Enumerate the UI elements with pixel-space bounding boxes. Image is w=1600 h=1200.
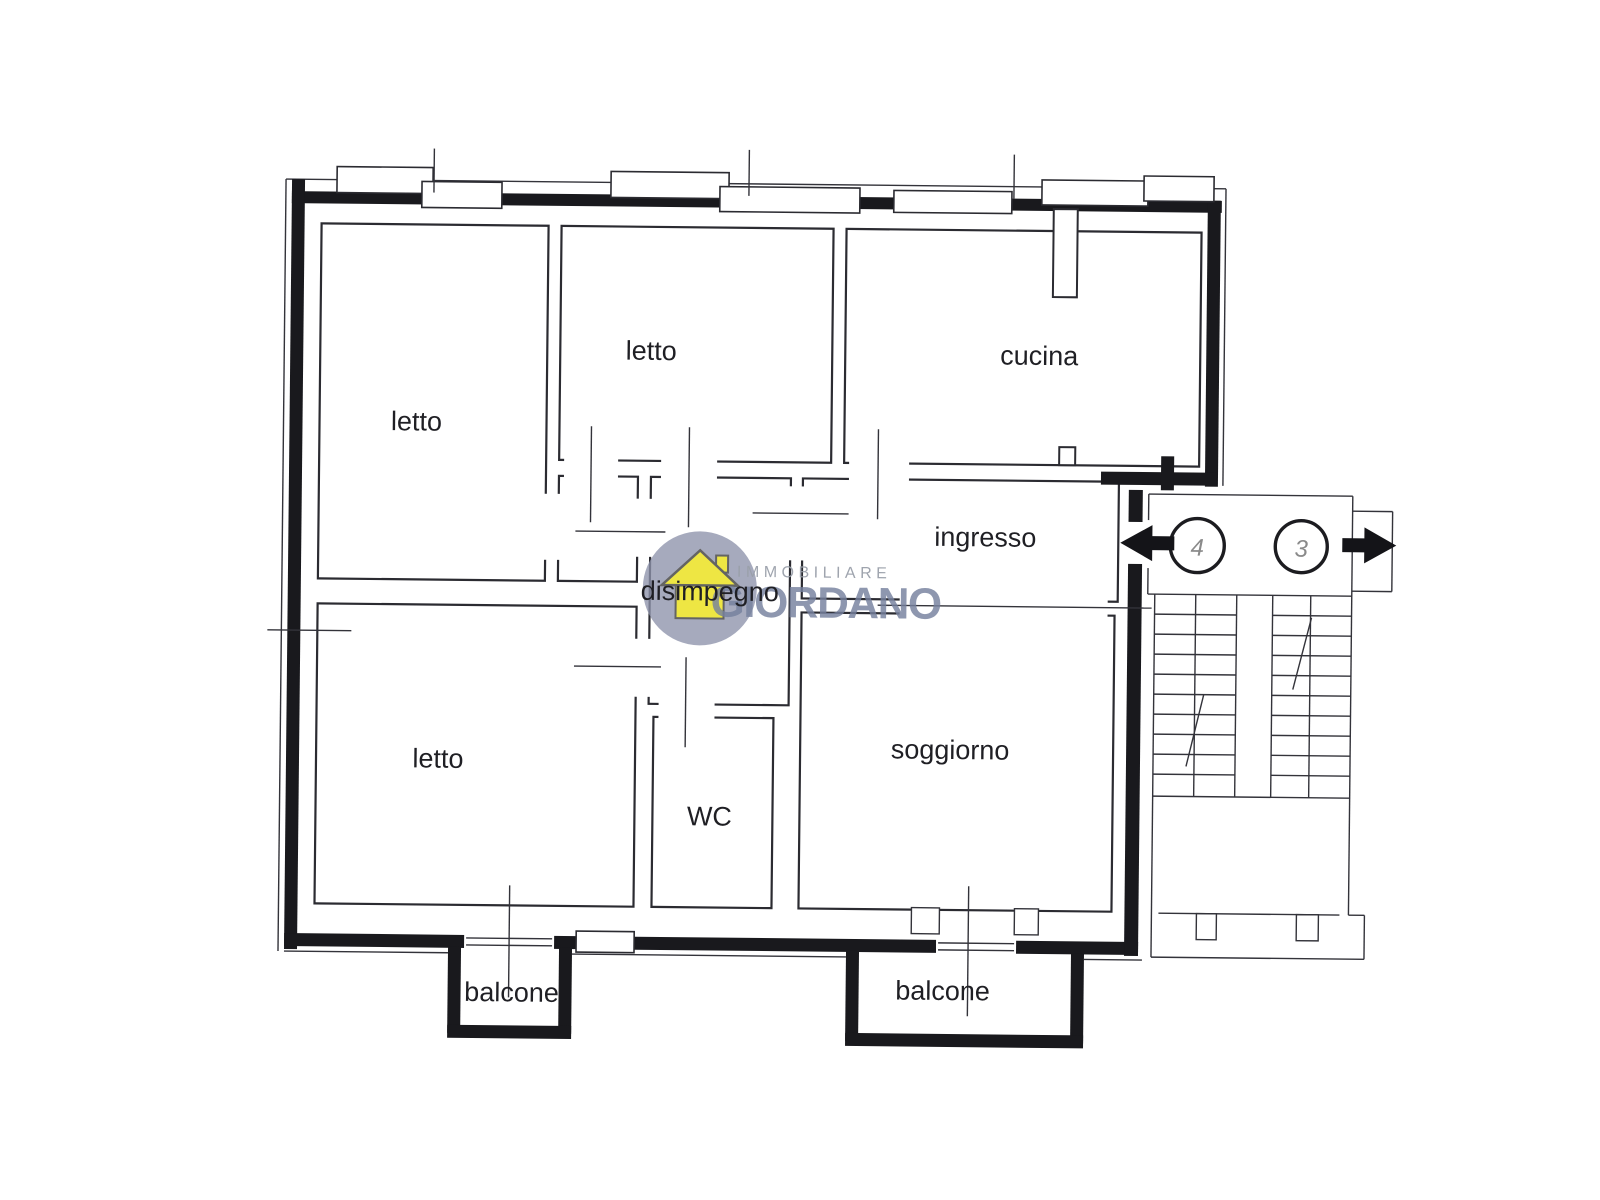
room-label-letto-top-middle: letto [626,336,677,367]
entry-arrow-right-icon [1342,527,1396,564]
room-alcove [558,476,638,582]
room-label-ingresso: ingresso [934,522,1036,553]
room-label-letto-top-left: letto [391,406,442,437]
room-letto-top-middle [559,226,833,463]
staircase: 4 3 [1144,494,1393,960]
apartment-number-label: 3 [1294,536,1308,563]
room-label-soggiorno: soggiorno [891,734,1010,765]
room-label-wc: WC [687,801,732,831]
room-label-cucina: cucina [1000,341,1079,372]
room-label-balcone-left: balcone [464,977,559,1008]
room-letto-bottom-left [314,603,636,906]
entry-arrow-left-icon [1120,525,1174,562]
floor-plan: 4 3 [0,0,1600,1200]
apartment-number-label: 4 [1190,535,1204,562]
room-label-disimpegno: disimpegno [641,576,779,607]
scanned-floor-plan-page: 4 3 [0,0,1600,1200]
room-letto-top-left [318,223,549,580]
room-label-balcone-right: balcone [895,975,990,1006]
room-label-letto-bottom-left: letto [412,743,463,774]
